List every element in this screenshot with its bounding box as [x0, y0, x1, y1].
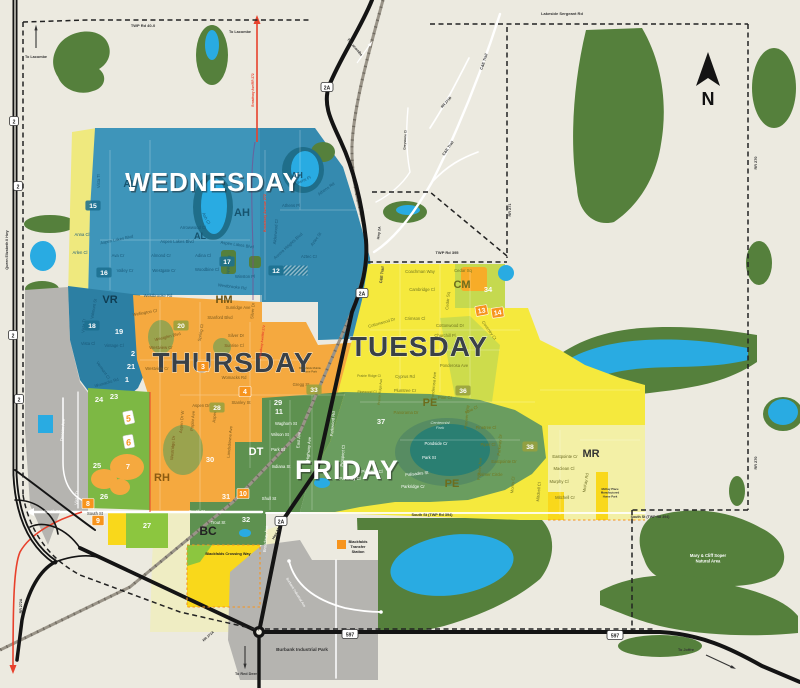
street-label-shull-st: Shull St	[262, 496, 277, 501]
zone-number-26: 26	[100, 492, 108, 501]
street-label-aspen-lakes-blvd: Aspen Lakes Blvd	[160, 239, 194, 244]
orange-marker-number-8: 8	[86, 501, 90, 508]
road-label-twp-rd-395: TWP Rd 395	[435, 250, 459, 255]
street-label-anna-cl: Anna Cl	[75, 232, 90, 237]
street-label-park-st: Park St	[271, 447, 286, 452]
road-label-rr-270: RR 270	[754, 457, 758, 470]
poi-label-home-park: Home Park	[303, 370, 318, 374]
street-label-aspen-dr: Aspen Dr	[192, 403, 210, 408]
neighborhood-code-al: AL	[123, 179, 136, 190]
poi-label-burbank-industrial-park: Burbank Industrial Park	[276, 647, 328, 652]
zone-number-28: 28	[213, 405, 221, 412]
zone-number-37: 37	[377, 417, 385, 426]
zone-number-7: 7	[126, 462, 130, 471]
street-label-cottonwood-dr: Cottonwood Dr	[436, 323, 465, 328]
highway-shield-label-2a: 2A	[359, 291, 366, 297]
street-label-coachman-way: Coachman Way	[405, 269, 436, 274]
zone-number-19: 19	[115, 327, 123, 336]
street-label-cyprus-rd: Cyprus Rd	[395, 374, 415, 379]
street-label-westview-cr: Westview Cr	[149, 345, 173, 350]
street-label-sunrise-cl: Sunrise Cl	[224, 343, 243, 348]
zone-number-25: 25	[93, 461, 101, 470]
zone-number-2: 2	[131, 349, 135, 358]
street-label-parkridge-cr: Parkridge Cr	[401, 484, 425, 489]
street-label-adina-cl: Adina Cl	[195, 253, 211, 258]
orange-marker-number-4: 4	[243, 389, 247, 396]
zone-number-33: 33	[310, 387, 318, 394]
poi-label-mary-cliff-soper: Mary & Cliff Soper	[690, 553, 727, 558]
street-label-cedar-sq: Cedar Sq	[454, 268, 472, 273]
street-label-eastpointe-dr: Eastpointe Dr	[491, 459, 517, 464]
street-label-indiana-st: Indiana St	[272, 464, 292, 469]
direction-label-to-joffre: To Joffre	[678, 648, 694, 652]
zone-number-18: 18	[88, 323, 96, 330]
zone-number-29: 29	[274, 398, 282, 407]
collection-day-map: WEDNESDAYWEDNESDAYTHURSDAYTUESDAYFRIDAYF…	[0, 0, 800, 688]
zone-number-31: 31	[222, 492, 230, 501]
neighborhood-code-pe: PE	[445, 478, 460, 490]
road-label-south-st-twp-rd-394: South St (TWP Rd 394)	[631, 515, 671, 519]
street-label-pinetree-cl: Pinetree Cl	[476, 425, 497, 430]
street-label-vista-tr: Vista Tr	[96, 173, 101, 188]
street-label-park-st: Park St	[422, 455, 437, 460]
zone-number-16: 16	[100, 270, 108, 277]
zone-number-1: 1	[125, 375, 129, 384]
zone-number-36: 36	[459, 388, 467, 395]
street-label-stanford-blvd: Stanford Blvd	[207, 315, 233, 320]
street-label-south-st: South St	[44, 509, 61, 514]
street-label-winston-pl: Winston Pl	[235, 274, 255, 279]
street-label-woodbine-cl: Woodbine Cl	[195, 267, 219, 272]
street-label-eastpointe-cr: Eastpointe Cr	[552, 454, 578, 459]
direction-label-to-lacombe: To Lacombe	[25, 55, 47, 59]
street-label-arrowwood-cl: Arrowwood Cl	[180, 225, 206, 230]
zone-number-38: 38	[526, 444, 534, 451]
street-label-churchill-pl: Churchill Pl	[434, 333, 455, 338]
street-label-valley-cr: Valley Cr	[117, 268, 134, 273]
highway-shield-label-2: 2	[18, 397, 21, 403]
poi-label-home-park: Home Park	[603, 494, 618, 498]
street-label-pondside-cr: Pondside Cr	[424, 441, 448, 446]
zone-number-24: 24	[95, 395, 104, 404]
road-label-rr-270: RR 270	[754, 157, 758, 170]
street-label-silver-dr: Silver Dr	[228, 333, 245, 338]
road-label-rr-272a: RR 272A	[19, 598, 23, 613]
neighborhood-code-vr: VR	[102, 294, 117, 306]
neighborhood-code-rh: RH	[154, 472, 170, 484]
road-label-lakeside-sergeant-rd: Lakeside Sergeant Rd	[541, 11, 583, 16]
highway-shield-label-597: 597	[346, 632, 355, 638]
zone-number-27: 27	[143, 521, 151, 530]
road-label-twp-rd-40-0: TWP Rd 40-0	[131, 23, 156, 28]
neighborhood-code-mr: MR	[582, 448, 599, 460]
street-label-prairie-ridge-cl: Prairie Ridge Cl	[357, 374, 381, 378]
poi-label-blackfalds: Blackfalds	[349, 540, 368, 544]
street-label-vista-cl: Vista Cl	[81, 341, 95, 346]
highway-shield-label-2a: 2A	[324, 85, 331, 91]
orange-marker-number-10: 10	[239, 491, 247, 498]
map-canvas: WEDNESDAYWEDNESDAYTHURSDAYTUESDAYFRIDAYF…	[0, 0, 800, 688]
poi-label-transfer: Transfer	[351, 545, 367, 549]
street-label-arlen-cl: Arlen Cl	[73, 250, 88, 255]
highway-shield-label-2: 2	[17, 184, 20, 190]
poi-label-blackfalds-crossing-way: Blackfalds Crossing Way	[205, 552, 251, 556]
zone-27-block	[126, 512, 168, 548]
street-label-panorama-dr: Panorama Dr	[394, 410, 420, 415]
street-label-pinnacle-cl: Pinnacle Cl	[361, 469, 382, 474]
street-label-cambridge-cl: Cambridge Cl	[409, 287, 435, 292]
street-label-almond-cr: Almond Cr	[151, 253, 171, 258]
road-label-queen-elizabeth-ii-hwy: Queen Elizabeth II Hwy	[5, 230, 9, 269]
zone-tag-hatch-12	[284, 266, 308, 276]
direction-label-to-lacombe: To Lacombe	[229, 30, 251, 34]
street-label-sunridge-ave: Sunridge Ave	[226, 305, 252, 310]
zone-number-11: 11	[275, 407, 283, 416]
zone-number-21: 21	[127, 362, 135, 371]
highway-shield-label-2a: 2A	[278, 519, 285, 525]
neighborhood-code-ah: AH	[234, 207, 250, 219]
street-label-ava-cr: Ava Cr	[112, 253, 125, 258]
street-label-mitchell-cr: Mitchell Cr	[555, 495, 575, 500]
orange-marker-number-13: 13	[477, 307, 486, 315]
street-label-westview-cr: Westview Cr	[145, 366, 169, 371]
transfer-station-icon	[337, 540, 346, 549]
street-label-parkway-cl: Parkway Cl	[339, 476, 360, 481]
road-label-broadway-ave-rr-272: Broadway Ave/RR 272	[251, 73, 255, 107]
highway-shield-label-597: 597	[611, 633, 620, 639]
orange-marker-number-9: 9	[96, 518, 100, 525]
zone-number-34: 34	[484, 285, 493, 294]
street-label-south-st: South St	[189, 509, 206, 514]
day-title-thursday: THURSDAY	[153, 347, 314, 378]
orange-marker-number-3: 3	[201, 364, 205, 371]
street-label-maclean-cl: Maclean Cl	[554, 466, 575, 471]
zone-number-30: 30	[206, 455, 214, 464]
street-label-waghorn-st: Waghorn St	[275, 421, 298, 426]
day-title-wednesday: WEDNESDAY	[125, 167, 301, 197]
street-label-vintage-cl: Vintage Cl	[104, 343, 123, 348]
orange-marker-number-14: 14	[493, 309, 502, 317]
zone-number-12: 12	[272, 268, 280, 275]
street-label-murphy-cl: Murphy Cl	[549, 479, 568, 484]
direction-label-to-red-deer: To Red Deer	[235, 672, 258, 676]
street-label-pine-cr: Pine Cr	[438, 395, 453, 400]
zone-number-17: 17	[223, 259, 231, 266]
neighborhood-code-cm: CM	[453, 279, 470, 291]
street-label-stanley-st: Stanley St	[231, 400, 251, 405]
street-label-plumtree-cr: Plumtree Cr	[394, 388, 417, 393]
street-label-westbrooke-rd: Westbrooke Rd	[144, 293, 173, 298]
street-label-athens-pl: Athens Pl	[282, 203, 300, 208]
poi-label-natural-area: Natural Area	[696, 558, 721, 563]
highway-shield-label-2: 2	[13, 119, 16, 125]
street-label-palmer-circle: Palmer Circle	[477, 472, 503, 477]
poi-label-station: Station	[352, 550, 366, 554]
zone-number-20: 20	[177, 323, 185, 330]
street-label-aztec-cr: Aztec Cr	[301, 254, 318, 259]
neighborhood-code-al: AL	[194, 231, 206, 241]
street-label-wilson-st: Wilson St	[271, 432, 290, 437]
road-label-broadway-avenue-272: Broadway Avenue 272	[263, 194, 267, 232]
neighborhood-code-bc: BC	[199, 524, 217, 538]
highway-shield-label-2: 2	[12, 333, 15, 339]
street-label-piper-cl: Piper Cl	[481, 442, 496, 447]
street-label-crimson-cl: Crimson Cl	[405, 316, 426, 321]
poi-label-park: Park	[436, 425, 445, 430]
zone-number-23: 23	[110, 392, 118, 401]
street-label-womacks-rd: Womacks Rd	[222, 375, 247, 380]
road-label-south-st-twp-rd-394: South St (TWP Rd 394)	[411, 513, 453, 517]
street-label-westgate-cr: Westgate Cr	[152, 268, 176, 273]
road-label-rr-271: RR 271	[508, 204, 512, 217]
north-arrow-label-n: N	[702, 89, 715, 109]
neighborhood-code-dt: DT	[249, 446, 264, 458]
street-label-pinewood-cl: Pinewood Cl	[357, 390, 376, 394]
day-title-tuesday: TUESDAY	[350, 331, 488, 362]
zone-number-32: 32	[242, 515, 250, 524]
zone-number-15: 15	[89, 203, 97, 210]
street-label-trout-st: Trout St	[211, 520, 227, 525]
street-label-ponderosa-ave: Ponderosa Ave	[440, 363, 469, 368]
